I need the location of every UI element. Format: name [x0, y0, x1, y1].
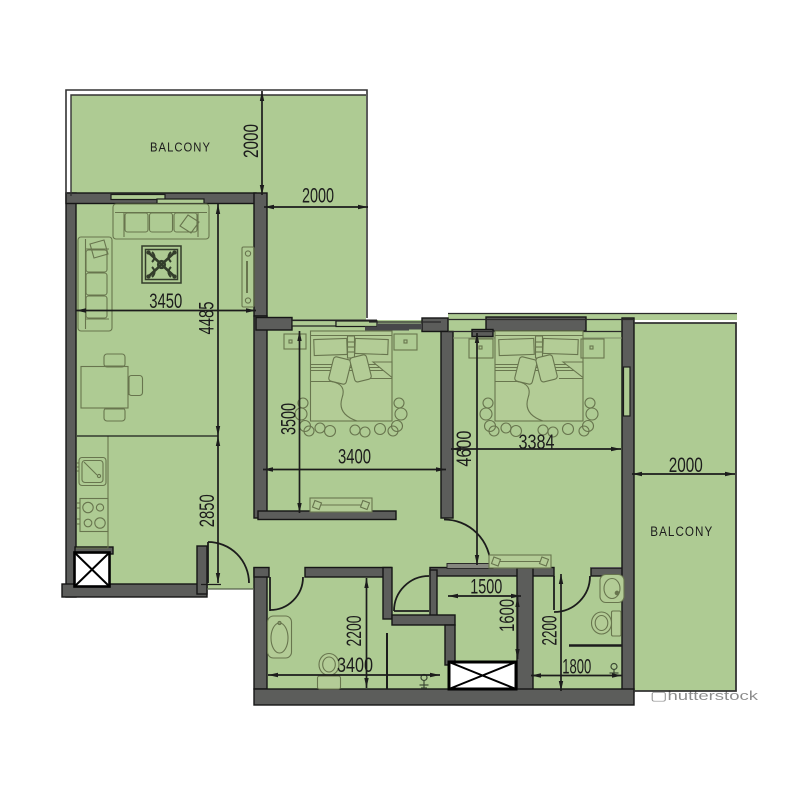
svg-text:2200: 2200: [539, 616, 562, 646]
svg-text:BALCONY: BALCONY: [650, 524, 713, 539]
svg-text:1800: 1800: [562, 656, 591, 679]
svg-text:1600: 1600: [496, 599, 519, 632]
svg-text:3400: 3400: [338, 446, 371, 469]
svg-text:3450: 3450: [149, 290, 182, 313]
svg-text:4485: 4485: [196, 302, 219, 335]
svg-text:2850: 2850: [196, 494, 219, 527]
svg-text:2000: 2000: [240, 124, 263, 158]
svg-text:2000: 2000: [669, 454, 703, 477]
svg-text:4600: 4600: [453, 431, 476, 467]
svg-text:1500: 1500: [470, 576, 502, 599]
svg-text:▢hutterstock: ▢hutterstock: [650, 689, 759, 703]
svg-text:2000: 2000: [302, 185, 334, 208]
svg-text:3400: 3400: [337, 654, 373, 677]
svg-text:3500: 3500: [278, 403, 301, 435]
svg-text:2200: 2200: [343, 616, 366, 647]
svg-text:BALCONY: BALCONY: [150, 139, 211, 154]
svg-text:3384: 3384: [519, 431, 555, 454]
